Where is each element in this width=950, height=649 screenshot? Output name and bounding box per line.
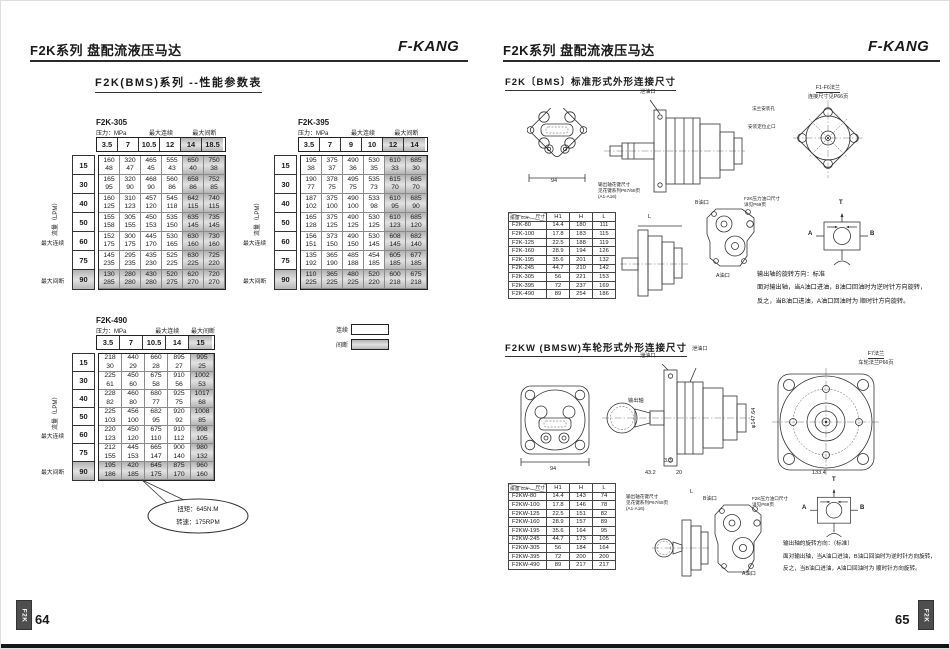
perf-cell: 46080 xyxy=(122,390,145,408)
perf-cell: 305155 xyxy=(120,213,141,232)
perf-cell: 32047 xyxy=(120,156,141,175)
perf-cell: 530145 xyxy=(364,232,385,251)
pressure-cell: 3.5 xyxy=(299,138,320,151)
std-front-view xyxy=(527,108,587,186)
wheel-front-view xyxy=(516,382,594,470)
dim-value: 142 xyxy=(593,264,616,273)
perf-cell: 980132 xyxy=(191,444,214,462)
dim-value: 210 xyxy=(570,264,593,273)
notes-line1: 输出轴的旋转方向：（标准） xyxy=(783,538,936,551)
flow-col: 15304050607590 xyxy=(72,155,95,290)
diagonal-header: 尺寸排量 cc/r xyxy=(509,213,547,222)
side-tab-right: F2K xyxy=(918,600,934,630)
perf-cell: 435230 xyxy=(141,251,162,270)
dim-94-wheel: 94 xyxy=(550,466,556,472)
dim-model: F2KW-80 xyxy=(509,492,547,501)
dim-value: 194 xyxy=(570,247,593,256)
output-shaft-label: 输出轴 xyxy=(628,397,644,404)
dim-value: 111 xyxy=(593,221,616,230)
perf-cell: 49575 xyxy=(343,175,364,194)
flow-cell: 90 xyxy=(275,270,296,289)
drain-port-label-wheel-1: 泄油口 xyxy=(640,352,656,359)
pressure-unit-label: 压力：MPa xyxy=(96,128,139,137)
port-size-line2: 详见P69页 xyxy=(752,502,788,508)
dim-row: F2K-10017.8183115 xyxy=(509,230,616,239)
legend-cont-box xyxy=(351,324,389,335)
perf-cell: 100253 xyxy=(191,372,214,390)
dim-value: 105 xyxy=(593,535,616,544)
perf-cell: 66028 xyxy=(145,354,168,372)
perf-cell: 545118 xyxy=(162,194,183,213)
port-a-label-std: A油口 xyxy=(716,272,730,279)
max-int-row-label: 最大间断 xyxy=(41,276,64,285)
dim-col-header: H xyxy=(570,213,593,222)
flow-axis-label: 流量（LPM） xyxy=(252,199,261,235)
dim-value: 143 xyxy=(570,492,593,501)
perf-cell: 520220 xyxy=(364,270,385,289)
table-header-labels: 压力：MPa 最大连续 最大间断 xyxy=(96,128,226,137)
dim-row: F2K-30556221153 xyxy=(509,273,616,282)
pressure-cell: 3.5 xyxy=(97,138,118,151)
dim-value: 146 xyxy=(570,501,593,510)
perf-cell: 300175 xyxy=(120,232,141,251)
brand-logo-right: F-KANG xyxy=(868,38,929,55)
perf-cell: 373150 xyxy=(322,232,343,251)
perf-cell: 22882 xyxy=(99,390,122,408)
brand-logo-left: F-KANG xyxy=(398,38,459,55)
perf-cell: 46890 xyxy=(141,175,162,194)
flow-cell: 50 xyxy=(275,213,296,232)
perf-cell: 485188 xyxy=(343,251,364,270)
perf-cell: 430280 xyxy=(141,270,162,289)
bottom-edge-bar xyxy=(0,644,950,649)
perf-cell: 91056 xyxy=(168,372,191,390)
dim-value: 72 xyxy=(547,552,570,561)
flange-wheel-label: F7法兰 车轮法兰P66页 xyxy=(848,350,904,366)
max-cont-row-label: 最大连续 xyxy=(41,238,64,247)
perf-cell: 22561 xyxy=(99,372,122,390)
dim-value: 56 xyxy=(547,544,570,553)
perf-cell: 220123 xyxy=(99,426,122,444)
rotation-notes-std: 输出轴的旋转方向：标准 面对输出轴，当A油口进油，B油口回油时为逆时针方向旋转，… xyxy=(757,268,926,308)
dim-value: 126 xyxy=(593,247,616,256)
perf-cell: 525225 xyxy=(162,251,183,270)
perf-cell: 720270 xyxy=(204,270,225,289)
page-title-right: F2K系列 盘配流液压马达 xyxy=(503,40,655,59)
dim-model: F2K-305 xyxy=(509,273,547,282)
dim-row: F2K-49089254186 xyxy=(509,290,616,299)
dim-col-header: L xyxy=(593,213,616,222)
dim-43-2: 43.2 xyxy=(645,470,656,476)
perf-cell: 44029 xyxy=(122,354,145,372)
dim-value: 95 xyxy=(593,526,616,535)
max-cont-label: 最大连续 xyxy=(341,128,384,137)
dim-row: F2KW-49089217217 xyxy=(509,561,616,570)
flange-std-label: F1-F6法兰 连接尺寸见P66页 xyxy=(796,84,860,100)
axis-labels: 流量（LPM） 最大连续 最大间断 xyxy=(40,353,72,481)
flow-col: 15304050607590 xyxy=(72,353,95,481)
dim-row: F2KW-19535.616495 xyxy=(509,526,616,535)
dim-133-4: 133.4 xyxy=(812,470,826,476)
dim-row: F2K-24544.7210142 xyxy=(509,264,616,273)
perf-cell: 685120 xyxy=(406,213,427,232)
perf-cell: 89527 xyxy=(168,354,191,372)
flow-cell: 90 xyxy=(73,270,94,289)
dim-value: 221 xyxy=(570,273,593,282)
header-rule-left xyxy=(30,60,468,62)
perf-table-f2k-305: F2K-305 压力：MPa 最大连续 最大间断 3.5710.5121418.… xyxy=(40,118,226,290)
max-cont-label: 最大连续 xyxy=(144,326,192,335)
dim-value: 200 xyxy=(593,552,616,561)
perf-cell: 635145 xyxy=(183,213,204,232)
callout-torque: 扭矩：645N.M xyxy=(158,504,238,517)
shaft-spline-note-std: 输出轴花键尺寸 见花键系列P67/68页 (A1-A16) xyxy=(598,182,640,199)
perf-cell: 675110 xyxy=(145,426,168,444)
port-size-note-std: F2K压力油口尺寸 详见P69页 xyxy=(744,196,780,208)
port-size-note-wheel: F2K压力油口尺寸 详见P69页 xyxy=(752,496,788,508)
perf-cell: 49036 xyxy=(343,156,364,175)
dim-row: F2K-16028.9194126 xyxy=(509,247,616,256)
flow-cell: 40 xyxy=(73,390,94,408)
table-header-labels: 压力：MPa 最大连续 最大间断 xyxy=(96,326,215,335)
flow-cell: 60 xyxy=(275,232,296,251)
pressure-row: 3.579101214 xyxy=(298,137,428,152)
notes-line3: 反之，当B油口进油，A油口回油时为 顺时针方向旋转。 xyxy=(757,295,926,308)
table-model: F2K-490 xyxy=(96,316,215,326)
dim-row: F2KW-24544.7173105 xyxy=(509,535,616,544)
flow-axis-label: 流量（LPM） xyxy=(50,199,59,235)
perf-cell: 187102 xyxy=(301,194,322,213)
perf-cell: 152175 xyxy=(99,232,120,251)
perf-cell: 608145 xyxy=(385,232,406,251)
perf-cell: 600218 xyxy=(385,270,406,289)
perf-cell: 280280 xyxy=(120,270,141,289)
pressure-cell: 3.5 xyxy=(97,336,120,349)
grid-body: 1953837537490365303561033685301907737875… xyxy=(300,155,428,290)
dim-model: F2KW-395 xyxy=(509,552,547,561)
dim-20: 20 xyxy=(676,470,682,476)
dim-model: F2K-100 xyxy=(509,230,547,239)
dim-L-wheel: L xyxy=(690,489,693,495)
notes-line3: 反之，当B油口进油，A油口回油时为 顺时针方向旋转。 xyxy=(783,563,936,576)
perf-cell: 99525 xyxy=(191,354,214,372)
perf-cell: 92092 xyxy=(168,408,191,426)
perf-cell: 900140 xyxy=(168,444,191,462)
dim-model: F2K-490 xyxy=(509,290,547,299)
perf-cell: 725220 xyxy=(204,251,225,270)
dim-value: 78 xyxy=(593,501,616,510)
flow-cell: 60 xyxy=(73,426,94,444)
drain-port-label-std: 泄油口 xyxy=(640,88,656,95)
pressure-cell: 10.5 xyxy=(143,336,166,349)
dim-value: 28.9 xyxy=(547,518,570,527)
perf-cell: 130285 xyxy=(99,270,120,289)
page-number-left: 64 xyxy=(35,612,49,627)
perf-cell: 100885 xyxy=(191,408,214,426)
flow-cell: 30 xyxy=(275,175,296,194)
perf-cell: 67558 xyxy=(145,372,168,390)
dim-row: F2KW-8014.414374 xyxy=(509,492,616,501)
flange-wheel-title: F7法兰 xyxy=(868,350,884,359)
perf-cell: 61033 xyxy=(385,156,406,175)
port-b-label-wheel: B油口 xyxy=(703,495,717,502)
dim-value: 188 xyxy=(570,238,593,247)
dim-model: F2KW-160 xyxy=(509,518,547,527)
flow-cell: 50 xyxy=(73,213,94,232)
dim-col-header: H xyxy=(570,484,593,493)
perf-cell: 68530 xyxy=(406,156,427,175)
dim-value: 217 xyxy=(570,561,593,570)
axis-labels: 流量（LPM） 最大连续 最大间断 xyxy=(40,155,72,290)
flow-cell: 15 xyxy=(73,354,94,372)
wheel-side-view xyxy=(602,362,752,474)
perf-cell: 520275 xyxy=(162,270,183,289)
perf-cell: 310123 xyxy=(120,194,141,213)
dim-model: F2K-395 xyxy=(509,281,547,290)
flow-cell: 50 xyxy=(73,408,94,426)
perf-cell: 160125 xyxy=(99,194,120,213)
perf-cell: 456100 xyxy=(122,408,145,426)
dim-value: 201 xyxy=(570,255,593,264)
perf-cell: 490125 xyxy=(343,213,364,232)
dim-model: F2KW-490 xyxy=(509,561,547,570)
perf-cell: 365225 xyxy=(322,270,343,289)
dim-value: 14.4 xyxy=(547,492,570,501)
perf-table-f2k-395: F2K-395 压力：MPa 最大连续 最大间断 3.579101214 流量（… xyxy=(242,118,428,290)
dim-value: 56 xyxy=(547,273,570,282)
drain-port-label-wheel-2: 泄油口 xyxy=(692,345,708,352)
pressure-cell: 12 xyxy=(383,138,404,151)
flange-pilot-label: 安装定位止口 xyxy=(748,124,776,130)
dim-model: F2K-245 xyxy=(509,264,547,273)
dim-model: F2KW-245 xyxy=(509,535,547,544)
flow-cell: 30 xyxy=(73,372,94,390)
symbol-a-label-std: A xyxy=(808,231,812,237)
flow-cell: 15 xyxy=(275,156,296,175)
perf-cell: 740115 xyxy=(204,194,225,213)
perf-cell: 630225 xyxy=(183,251,204,270)
pressure-cell: 7 xyxy=(120,336,143,349)
symbol-t-label-std: T xyxy=(839,200,843,206)
perf-cell: 53398 xyxy=(364,194,385,213)
perf-cell: 450120 xyxy=(122,426,145,444)
max-int-label: 最大间断 xyxy=(191,326,215,335)
pressure-cell: 9 xyxy=(341,138,362,151)
flow-cell: 40 xyxy=(275,194,296,213)
wheel-small-side-view xyxy=(652,516,710,580)
perf-cell: 155158 xyxy=(99,213,120,232)
dim-value: 22.5 xyxy=(547,509,570,518)
max-int-row-label: 最大间断 xyxy=(243,276,266,285)
max-int-label: 最大间断 xyxy=(183,128,226,137)
flow-cell: 60 xyxy=(73,232,94,251)
pressure-row: 3.5710.51415 xyxy=(96,335,215,350)
symbol-t-label-wheel: T xyxy=(832,477,836,483)
side-tab-left: F2K xyxy=(16,600,32,630)
section-title-performance: F2K(BMS)系列 --性能参数表 xyxy=(95,74,262,93)
dim-value: 186 xyxy=(593,290,616,299)
dim-model: F2KW-305 xyxy=(509,544,547,553)
flange-hole-label: 法兰安装孔 xyxy=(752,106,775,112)
dim-row: F2KW-30556184164 xyxy=(509,544,616,553)
port-b-label-std: B油口 xyxy=(695,199,709,206)
dim-row: F2KW-12522.515182 xyxy=(509,509,616,518)
dim-value: 132 xyxy=(593,255,616,264)
perf-cell: 65040 xyxy=(183,156,204,175)
dim-table-f2kw: 尺寸排量 cc/rH1HLF2KW-8014.414374F2KW-10017.… xyxy=(508,483,616,570)
dim-value: 17.8 xyxy=(547,501,570,510)
port-a-label-wheel: A油口 xyxy=(742,570,756,577)
perf-cell: 530125 xyxy=(364,213,385,232)
perf-cell: 375100 xyxy=(322,194,343,213)
dim-model: F2KW-125 xyxy=(509,509,547,518)
perf-cell: 605185 xyxy=(385,251,406,270)
dim-value: 200 xyxy=(570,552,593,561)
dim-model: F2K-160 xyxy=(509,247,547,256)
dim-value: 184 xyxy=(570,544,593,553)
dim-model: F2K-80 xyxy=(509,221,547,230)
legend-int-label: 间断 xyxy=(332,340,348,349)
perf-cell: 490100 xyxy=(343,194,364,213)
callout-speed: 转速：175RPM xyxy=(158,517,238,530)
dim-row: F2K-19535.6201132 xyxy=(509,255,616,264)
flow-axis-label: 流量（LPM） xyxy=(50,393,59,429)
flow-cell: 90 xyxy=(73,462,94,480)
dim-value: 173 xyxy=(570,535,593,544)
dim-value: 35.6 xyxy=(547,526,570,535)
dim-value: 89 xyxy=(593,518,616,527)
perf-cell: 620270 xyxy=(183,270,204,289)
perf-cell: 630160 xyxy=(183,232,204,251)
flange-std-title: F1-F6法兰 xyxy=(816,84,840,93)
perf-cell: 375125 xyxy=(322,213,343,232)
dim-value: 164 xyxy=(593,544,616,553)
page-number-right: 65 xyxy=(895,612,909,627)
dim-model: F2KW-100 xyxy=(509,501,547,510)
symbol-b-label-wheel: B xyxy=(860,505,864,511)
perf-cell: 730160 xyxy=(204,232,225,251)
perf-cell: 445153 xyxy=(122,444,145,462)
perf-cell: 75285 xyxy=(204,175,225,194)
dim-L-std: L xyxy=(648,214,651,220)
perf-cell: 19077 xyxy=(301,175,322,194)
notes-line1: 输出轴的旋转方向：标准 xyxy=(757,268,926,281)
pressure-cell: 14 xyxy=(404,138,425,151)
perf-cell: 165128 xyxy=(301,213,322,232)
symbol-a-label-wheel: A xyxy=(802,505,806,511)
header-rule-right xyxy=(503,60,940,62)
max-cont-row-label: 最大连续 xyxy=(41,431,64,440)
perf-cell: 535150 xyxy=(162,213,183,232)
dim-value: 115 xyxy=(593,230,616,239)
perf-cell: 530165 xyxy=(162,232,183,251)
dim-value: 157 xyxy=(570,518,593,527)
pressure-unit-label: 压力：MPa xyxy=(96,326,144,335)
perf-cell: 998105 xyxy=(191,426,214,444)
side-tab-label: F2K xyxy=(923,608,930,622)
perf-cell: 16595 xyxy=(99,175,120,194)
perf-cell: 735145 xyxy=(204,213,225,232)
dim-model: F2KW-195 xyxy=(509,526,547,535)
perf-cell: 68077 xyxy=(145,390,168,408)
perf-cell: 110225 xyxy=(301,270,322,289)
dim-value: 89 xyxy=(547,561,570,570)
std-side-view xyxy=(602,96,747,196)
perf-cell: 92575 xyxy=(168,390,191,408)
dim-model: F2K-125 xyxy=(509,238,547,247)
dim-value: 44.7 xyxy=(547,264,570,273)
dim-col-header: H1 xyxy=(547,484,570,493)
table-header-labels: 压力：MPa 最大连续 最大间断 xyxy=(298,128,428,137)
dim-value: 44.7 xyxy=(547,535,570,544)
dim-value: 237 xyxy=(570,281,593,290)
std-flange-view xyxy=(793,100,863,184)
pressure-row: 3.5710.5121418.5 xyxy=(96,137,226,152)
rotation-notes-wheel: 输出轴的旋转方向：（标准） 面对输出轴，当A油口进油，B油口回油时为逆时针方向旋… xyxy=(783,538,936,576)
perf-cell: 675218 xyxy=(406,270,427,289)
perf-cell: 212155 xyxy=(99,444,122,462)
dim-value: 35.6 xyxy=(547,255,570,264)
dim-value: 17.8 xyxy=(547,230,570,239)
perf-cell: 454185 xyxy=(364,251,385,270)
perf-cell: 490150 xyxy=(343,232,364,251)
page-title-left: F2K系列 盘配流液压马达 xyxy=(30,40,182,59)
perf-cell: 135192 xyxy=(301,251,322,270)
flow-col: 15304050607590 xyxy=(274,155,297,290)
perf-cell: 56086 xyxy=(162,175,183,194)
legend-cont-label: 连续 xyxy=(332,325,348,334)
perf-cell: 68570 xyxy=(406,175,427,194)
dim-3-3: 3.3 xyxy=(664,458,672,464)
flow-cell: 40 xyxy=(73,194,94,213)
flow-cell: 15 xyxy=(73,156,94,175)
flow-cell: 75 xyxy=(275,251,296,270)
pressure-cell: 14 xyxy=(166,336,189,349)
legend-int-box xyxy=(351,339,389,350)
perf-cell: 46545 xyxy=(141,156,162,175)
dim-value: 28.9 xyxy=(547,247,570,256)
grid-body: 2183044029660288952799525225614506067558… xyxy=(98,353,215,481)
perf-cell: 53035 xyxy=(364,156,385,175)
max-int-label: 最大间断 xyxy=(385,128,428,137)
dim-table: 尺寸排量 cc/rH1HLF2K-8014.4180111F2K-10017.8… xyxy=(508,212,616,299)
dim-row: F2K-12522.5188119 xyxy=(509,238,616,247)
pressure-cell: 10.5 xyxy=(139,138,160,151)
perf-cell: 457120 xyxy=(141,194,162,213)
axis-labels: 流量（LPM） 最大连续 最大间断 xyxy=(242,155,274,290)
dim-col-header: L xyxy=(593,484,616,493)
pressure-cell: 12 xyxy=(160,138,181,151)
flow-cell: 75 xyxy=(73,444,94,462)
callout-text: 扭矩：645N.M 转速：175RPM xyxy=(158,504,238,529)
perf-cell: 450153 xyxy=(141,213,162,232)
flange-std-sub: 连接尺寸见P66页 xyxy=(796,93,860,100)
notes-line2: 面对输出轴，当A油口进油，B油口回油时为逆时针方向旋转， xyxy=(783,551,936,564)
perf-cell: 295235 xyxy=(120,251,141,270)
flange-wheel-sub: 车轮法兰P66页 xyxy=(848,359,904,366)
dim-value: 14.4 xyxy=(547,221,570,230)
dim-value: 72 xyxy=(547,281,570,290)
flow-cell: 75 xyxy=(73,251,94,270)
perf-cell: 101768 xyxy=(191,390,214,408)
perf-cell: 365190 xyxy=(322,251,343,270)
perf-cell: 156151 xyxy=(301,232,322,251)
dim-d147: φ147.64 xyxy=(751,408,757,428)
pressure-cell: 7 xyxy=(118,138,139,151)
dim-table: 尺寸排量 cc/rH1HLF2KW-8014.414374F2KW-10017.… xyxy=(508,483,616,570)
dim-value: 153 xyxy=(593,273,616,282)
perf-cell: 677185 xyxy=(406,251,427,270)
